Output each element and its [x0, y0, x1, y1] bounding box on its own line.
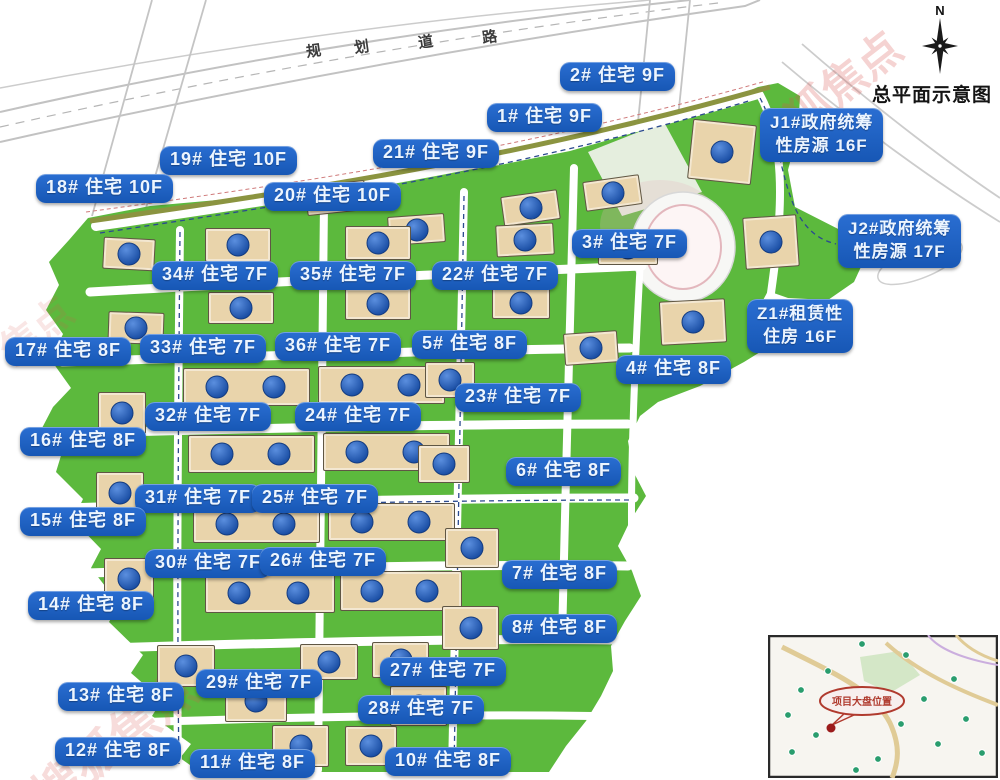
- project-location-dot: [827, 724, 836, 733]
- map-poi-marker: [825, 668, 832, 675]
- map-poi-marker: [903, 652, 910, 659]
- map-poi-marker: [875, 756, 882, 763]
- map-poi-marker: [859, 641, 866, 648]
- location-inset-map: 项目大盘位置: [768, 635, 998, 778]
- project-location-label: 项目大盘位置: [832, 695, 892, 708]
- map-poi-marker: [935, 741, 942, 748]
- map-poi-marker: [785, 712, 792, 719]
- compass-north: N: [918, 2, 962, 82]
- map-poi-marker: [789, 749, 796, 756]
- map-poi-marker: [921, 696, 928, 703]
- map-title: 总平面示意图: [872, 80, 992, 107]
- map-poi-marker: [951, 676, 958, 683]
- north-arrow-icon: [922, 18, 958, 74]
- planned-road-label: 道: [417, 30, 435, 53]
- planned-road-label: 规: [305, 39, 323, 62]
- planned-road-label: 路: [481, 25, 499, 48]
- map-poi-marker: [853, 767, 860, 774]
- map-poi-marker: [813, 732, 820, 739]
- planned-road-label: 划: [353, 35, 371, 58]
- site-plan-map: 狐焦点 搜狐焦点 焦点 规 划 道 路 2# 住宅 9F1# 住宅 9F21# …: [0, 0, 1000, 780]
- map-poi-marker: [963, 716, 970, 723]
- compass-n-label: N: [935, 3, 944, 18]
- map-poi-marker: [898, 721, 905, 728]
- map-poi-marker: [798, 687, 805, 694]
- map-poi-marker: [979, 750, 986, 757]
